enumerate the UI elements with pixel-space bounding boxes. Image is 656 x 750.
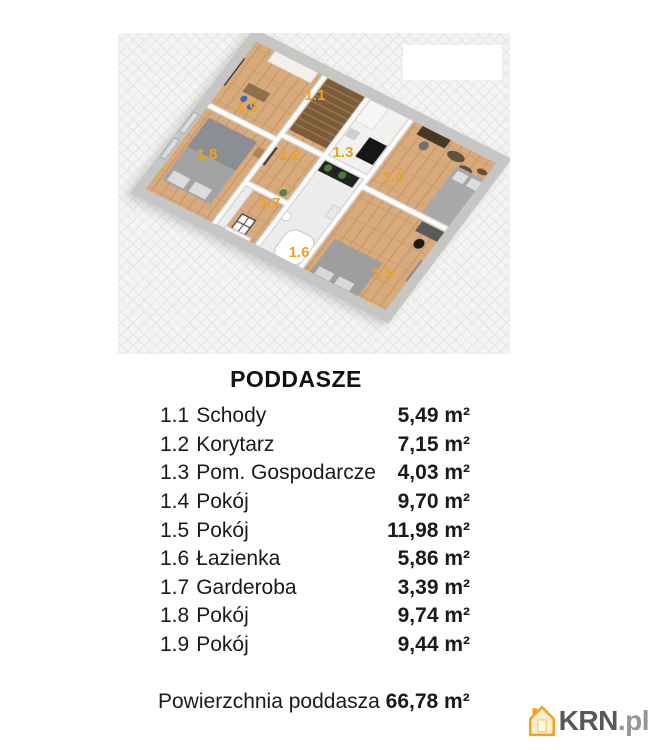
room-label: 1.1Schody <box>160 404 266 428</box>
room-area: 7,15 m² <box>398 433 470 457</box>
krn-tld-text: .pl <box>618 705 649 737</box>
room-list-item: 1.6Łazienka 5,86 m² <box>160 545 470 574</box>
room-area: 3,39 m² <box>398 576 470 600</box>
plan-label-1-6: 1.6 <box>289 244 310 261</box>
floorplan-3d-view: 1.1 1.2 1.3 1.4 1.5 1.6 1.7 1.8 1.9 <box>118 33 510 354</box>
plan-label-1-1: 1.1 <box>305 87 326 104</box>
room-list-item: 1.8Pokój 9,74 m² <box>160 602 470 631</box>
listing-image: 1.1 1.2 1.3 1.4 1.5 1.6 1.7 1.8 1.9 PODD… <box>0 0 656 750</box>
room-label: 1.5Pokój <box>160 519 249 543</box>
plan-label-1-8: 1.8 <box>197 146 218 163</box>
plan-label-1-5: 1.5 <box>372 265 393 282</box>
plan-label-1-4: 1.4 <box>383 169 405 186</box>
room-area: 5,86 m² <box>398 547 470 571</box>
room-area: 9,44 m² <box>398 633 470 657</box>
room-area: 9,70 m² <box>398 490 470 514</box>
total-area-value: 66,78 m² <box>386 690 470 713</box>
room-area: 4,03 m² <box>398 461 470 485</box>
plan-label-1-9: 1.9 <box>237 99 258 116</box>
krn-watermark: KRN.pl <box>528 703 649 739</box>
floorplan-svg: 1.1 1.2 1.3 1.4 1.5 1.6 1.7 1.8 1.9 <box>118 33 510 354</box>
room-list-item: 1.7Garderoba 3,39 m² <box>160 574 470 603</box>
room-label: 1.7Garderoba <box>160 576 297 600</box>
total-area: Powierzchnia poddasza 66,78 m² <box>158 690 470 714</box>
room-list-item: 1.3Pom. Gospodarcze 4,03 m² <box>160 459 470 488</box>
room-area: 11,98 m² <box>387 519 470 543</box>
room-label: 1.9Pokój <box>160 633 249 657</box>
plan-label-1-2: 1.2 <box>280 147 301 164</box>
room-list: 1.1Schody 5,49 m² 1.2Korytarz 7,15 m² 1.… <box>160 402 470 659</box>
krn-brand-text: KRN <box>559 705 618 737</box>
room-list-item: 1.2Korytarz 7,15 m² <box>160 431 470 460</box>
room-label: 1.3Pom. Gospodarcze <box>160 461 376 485</box>
room-list-item: 1.9Pokój 9,44 m² <box>160 631 470 660</box>
house-icon <box>528 705 556 737</box>
room-label: 1.6Łazienka <box>160 547 280 571</box>
plan-label-1-7: 1.7 <box>260 195 281 212</box>
room-label: 1.8Pokój <box>160 604 249 628</box>
room-area: 5,49 m² <box>398 404 470 428</box>
room-list-item: 1.1Schody 5,49 m² <box>160 402 470 431</box>
room-label: 1.2Korytarz <box>160 433 274 457</box>
room-area: 9,74 m² <box>398 604 470 628</box>
room-list-item: 1.5Pokój 11,98 m² <box>160 516 470 545</box>
plan-label-1-3: 1.3 <box>333 144 354 161</box>
total-area-label: Powierzchnia poddasza <box>158 690 380 713</box>
blank-logo-box <box>403 45 502 80</box>
floor-title: PODDASZE <box>160 366 432 393</box>
room-list-item: 1.4Pokój 9,70 m² <box>160 488 470 517</box>
room-label: 1.4Pokój <box>160 490 249 514</box>
